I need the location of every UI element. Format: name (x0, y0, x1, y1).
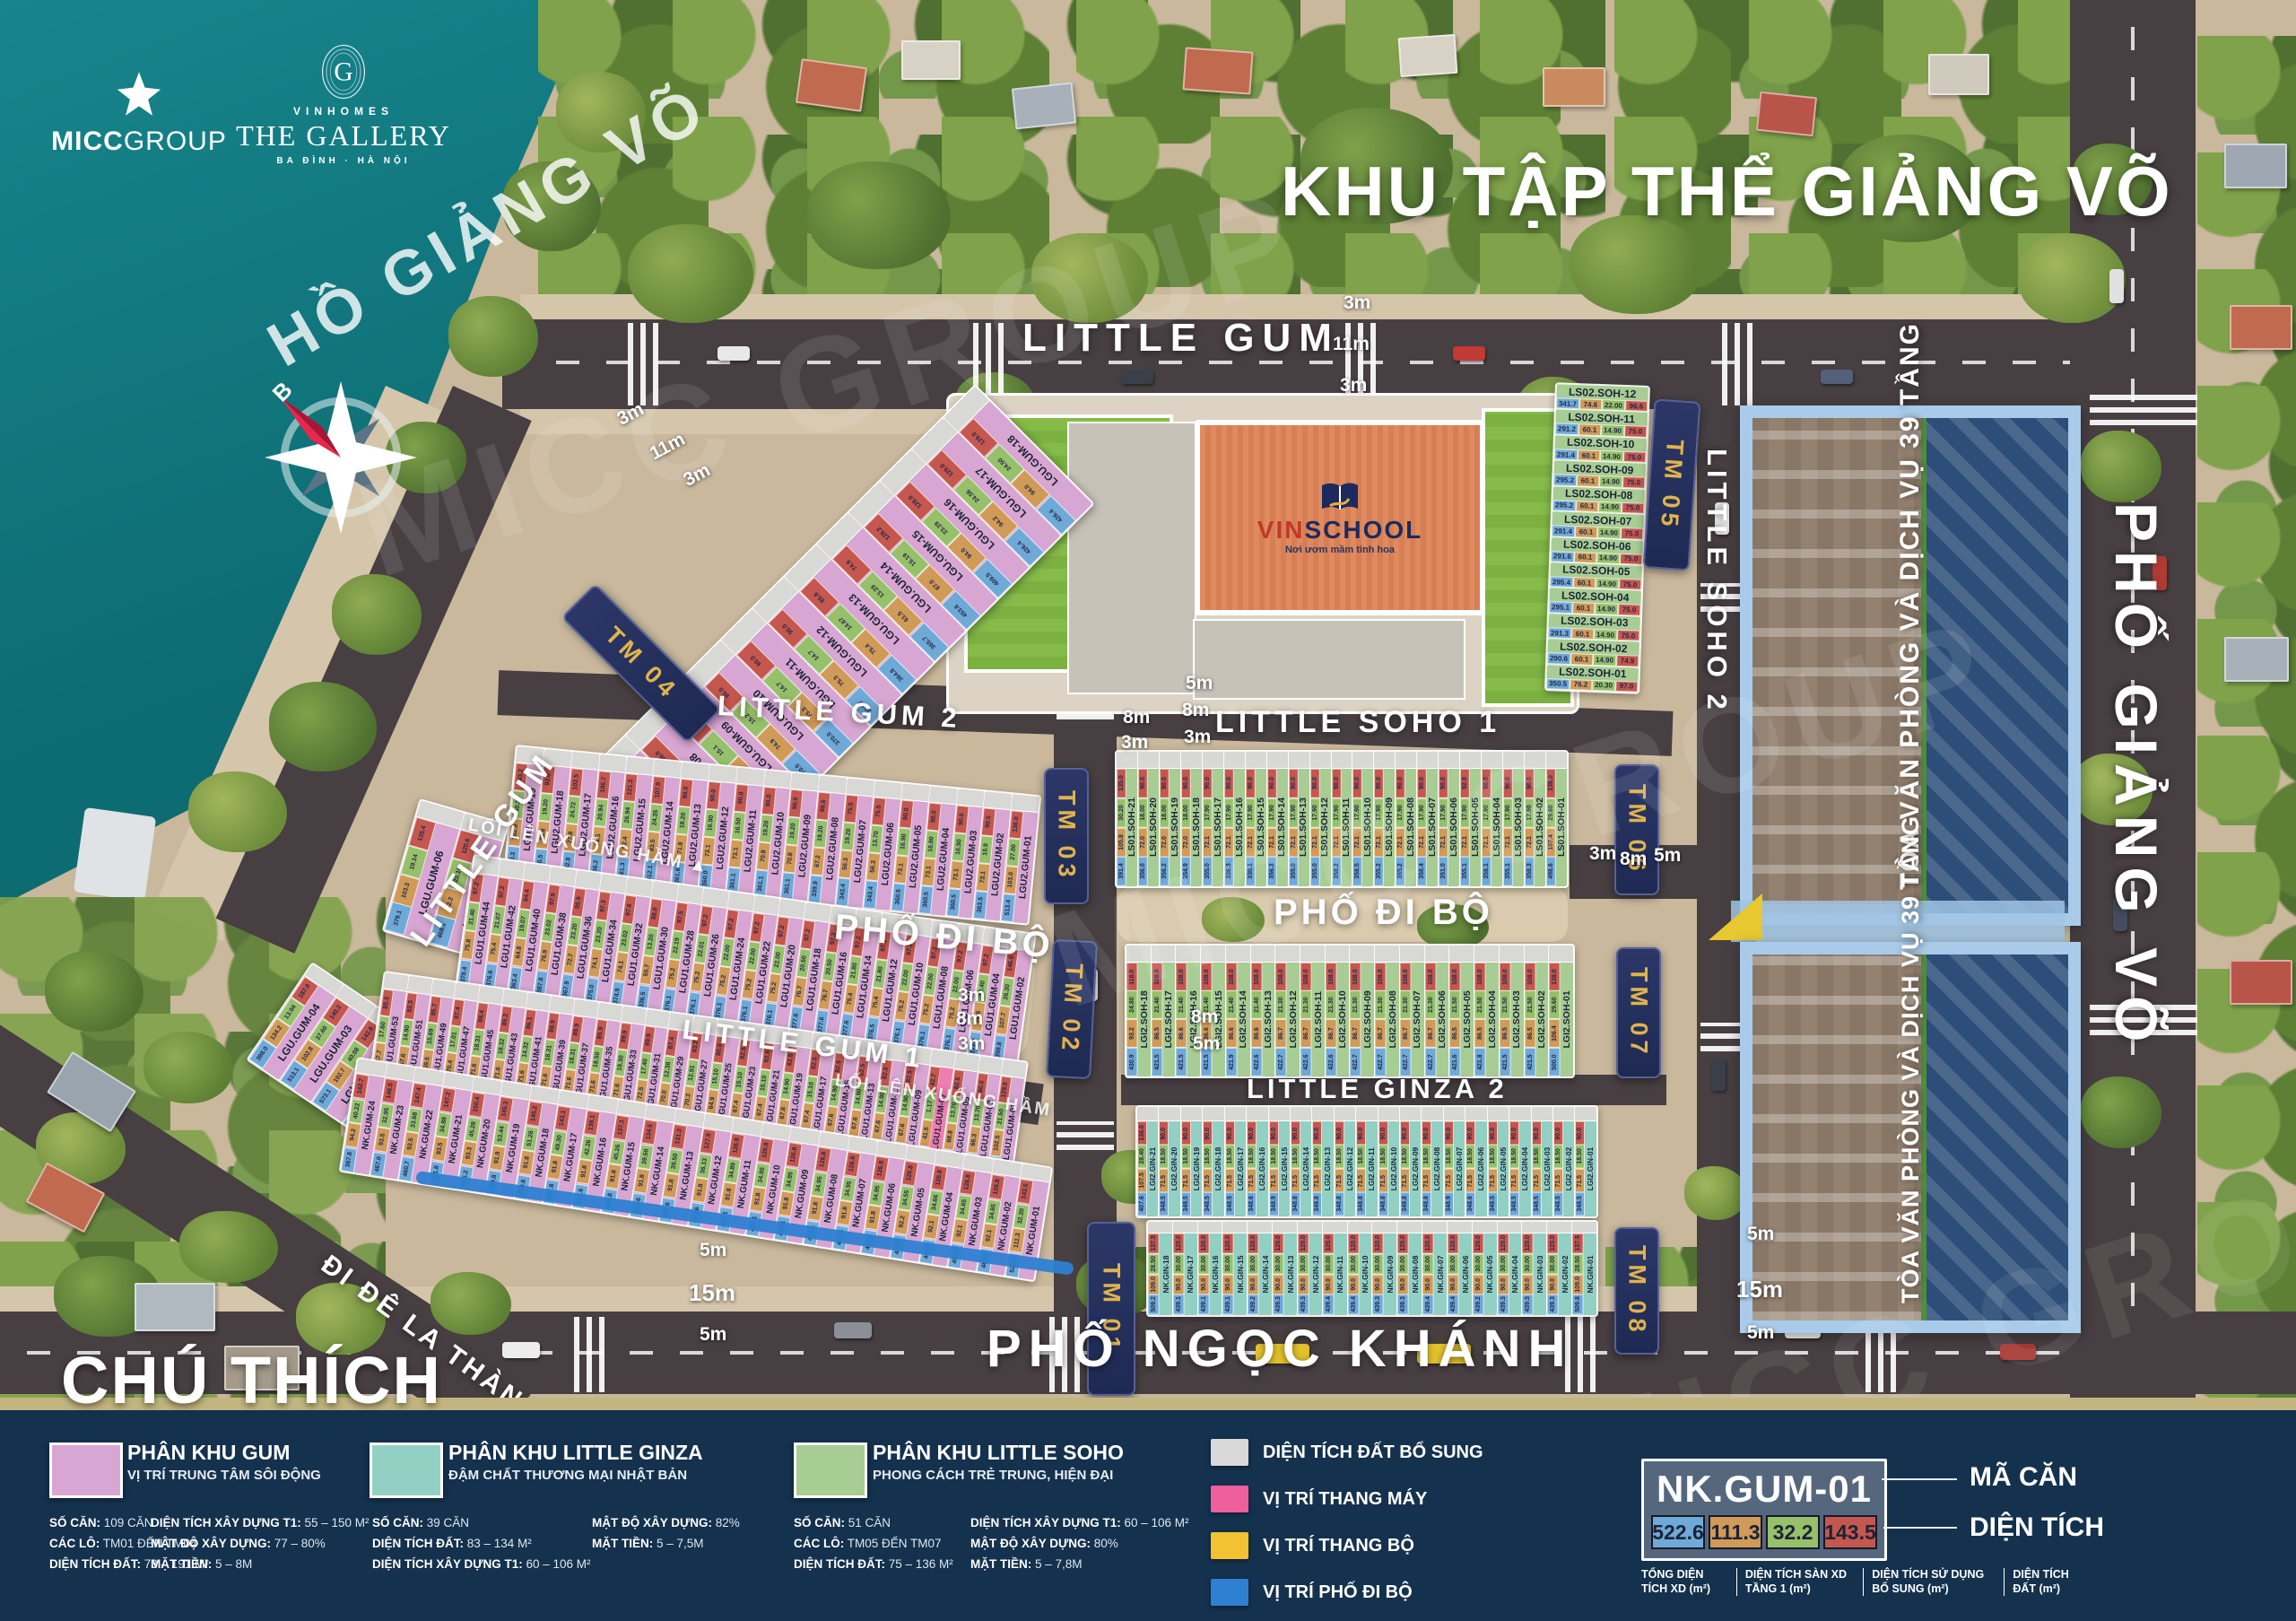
lot-NK.GIN-06: 120.030.0090.0439.4NK.GIN-06 (1448, 1222, 1472, 1315)
lot-NK.GIN-13: 120.030.0090.0439.3NK.GIN-13 (1273, 1222, 1297, 1315)
lot-NK.GIN-15: 120.030.0090.0439.1NK.GIN-15 (1222, 1222, 1247, 1315)
area-value-chip: 111.3 (1709, 1515, 1762, 1549)
lot-LGI2.GIN-19: 90.018.5071.5348.5LGI2.GIN-19 (1181, 1107, 1202, 1216)
legend-stats: DIỆN TÍCH XÂY DỰNG T1: 55 – 150 M²MẬT ĐỘ… (151, 1516, 370, 1578)
legend-stat: DIỆN TÍCH XÂY DỰNG T1: 60 – 106 M² (970, 1516, 1189, 1529)
micc-star-icon (113, 110, 165, 126)
area-value-chip: 143.5 (1823, 1515, 1877, 1549)
area-value-chip: 522.6 (1651, 1515, 1705, 1549)
lot-NK.GIN-17: 120.030.0090.0439.1NK.GIN-17 (1173, 1222, 1197, 1315)
lot-LGI2.GIN-17: 90.018.5071.5348.5LGI2.GIN-17 (1225, 1107, 1246, 1216)
lot-LS02.SOH-06: 291.660.114.9075.0LS02.SOH-06 (1551, 537, 1643, 565)
lot-LGI2.SOH-02: 108.021.5086.5421.5LGI2.SOH-02 (1525, 946, 1549, 1076)
lot-LS02.SOH-07: 291.460.114.9075.0LS02.SOH-07 (1552, 511, 1644, 539)
legend-marker-swatch (1211, 1439, 1248, 1466)
legend-swatch-ginza (370, 1442, 443, 1498)
legend-swatch-soho (794, 1442, 867, 1498)
micc-logo: MICCGROUP (40, 70, 238, 157)
dimension-label: 3m (1340, 375, 1367, 397)
lot-LGI2.SOH-03: 108.021.5086.5421.5LGI2.SOH-03 (1500, 946, 1524, 1076)
area-title: KHU TẬP THỂ GIẢNG VÕ (1281, 151, 2173, 232)
legend-stat: SỐ CĂN: 51 CĂN (794, 1516, 953, 1529)
lot-LGI2.GIN-08: 90.018.5071.5348.8LGI2.GIN-08 (1422, 1107, 1442, 1216)
lot-LS02.SOH-10: 291.460.114.9075.0LS02.SOH-10 (1554, 435, 1647, 463)
legend-zone-title: PHÂN KHU GUM (127, 1441, 290, 1465)
legend-stat: MẶT TIỀN: 5 – 8M (151, 1557, 370, 1571)
lot-LGI2.GIN-04: 90.018.5071.5348.5LGI2.GIN-04 (1509, 1107, 1530, 1216)
lot-LGI2.GIN-16: 90.018.5071.5348.6LGI2.GIN-16 (1247, 1107, 1267, 1216)
dimension-label: 3m (1121, 732, 1148, 754)
legend-zone-title: PHÂN KHU LITTLE GINZA (448, 1441, 703, 1465)
legend-stat: MẬT ĐỘ XÂY DỰNG: 80% (970, 1537, 1189, 1550)
legend-zone-subtitle: ĐẬM CHẤT THƯƠNG MẠI NHẬT BẢN (448, 1468, 687, 1483)
vinschool-tagline: Nơi ươm mầm tinh hoa (1285, 545, 1395, 555)
legend-stats: MẬT ĐỘ XÂY DỰNG: 82%MẶT TIỀN: 5 – 7,5M (592, 1516, 740, 1557)
lot-LS02.SOH-12: 341.774.622.0096.6LS02.SOH-12 (1556, 384, 1648, 412)
lot-LGI2.SOH-09: 108.021.3086.7422.7LGI2.SOH-09 (1350, 946, 1374, 1076)
lot-LGI2.SOH-08: 108.021.3086.7422.7LGI2.SOH-08 (1375, 946, 1399, 1076)
vinschool-name-red: VIN (1257, 516, 1305, 544)
lot-LS02.SOH-04: 295.160.114.9075.0LS02.SOH-04 (1549, 588, 1641, 616)
vinschool-name-blue: SCHOOL (1304, 516, 1422, 544)
lot-LS02.SOH-09: 295.260.114.9075.0LS02.SOH-09 (1553, 461, 1646, 489)
master-plan-poster: VINSCHOOL Nơi ươm mầm tinh hoa TÒA VĂN P… (0, 0, 2296, 1621)
lot-NK.GIN-05: 120.030.0090.0439.2NK.GIN-05 (1473, 1222, 1497, 1315)
lot-LS02.SOH-03: 291.360.114.9075.0LS02.SOH-03 (1548, 614, 1640, 641)
footnote: DIỆN TÍCH ĐẤT (m²) (2004, 1568, 2090, 1596)
lot-LGI2.GIN-21: 136.028.40107.5407.6LGI2.GIN-21 (1137, 1107, 1158, 1216)
lot-NK.GIN-02: 120.030.0090.0439.3NK.GIN-02 (1547, 1222, 1571, 1315)
lot-LGI2.GIN-20: 90.018.5071.5348.5LGI2.GIN-20 (1159, 1107, 1179, 1216)
legend-marker: VỊ TRÍ THANG BỘ (1211, 1532, 1483, 1559)
dimension-label: 3m (958, 1033, 985, 1055)
dimension-label: 5m (700, 1324, 726, 1346)
vinhomes-word: VINHOMES (231, 105, 456, 118)
dimension-label: 3m (1184, 727, 1211, 748)
footnote: DIỆN TÍCH SỬ DỤNG BỔ SUNG (m²) (1863, 1568, 2004, 1596)
callout-dien-tich: DIỆN TÍCH (1970, 1512, 2104, 1543)
footnote: DIỆN TÍCH SÀN XD TẦNG 1 (m²) (1736, 1568, 1863, 1596)
dimension-label: 5m (700, 1240, 726, 1261)
lot-NK.GIN-14: 120.030.0090.0439.2NK.GIN-14 (1248, 1222, 1272, 1315)
dimension-label: 5m (1186, 673, 1213, 694)
lot-LS02.SOH-08: 295.260.114.9075.0LS02.SOH-08 (1552, 486, 1645, 514)
lot-NK.GIN-10: 120.030.0090.0439.4NK.GIN-10 (1348, 1222, 1372, 1315)
school-building (1067, 422, 1196, 694)
legend-stat: MẬT ĐỘ XÂY DỰNG: 77 – 80% (151, 1537, 370, 1550)
dimension-label: 3m (958, 985, 985, 1007)
callout-ma-can: MÃ CĂN (1970, 1462, 2077, 1493)
street-label-little-soho-1: LITTLE SOHO 1 (1215, 705, 1500, 740)
legend-marker: VỊ TRÍ PHỐ ĐI BỘ (1211, 1579, 1483, 1606)
dimension-label: 15m (1736, 1276, 1783, 1303)
lot-LS02.SOH-05: 295.460.114.9075.0LS02.SOH-05 (1550, 562, 1642, 590)
legend-stats: SỐ CĂN: 39 CĂNDIỆN TÍCH ĐẤT: 83 – 134 M²… (372, 1516, 591, 1578)
tower-label: TÒA VĂN PHÒNG VÀ DỊCH VỤ 39 TẦNG (1892, 972, 1928, 1303)
lot-NK.GIN-18: 137.528.50109.0509.2NK.GIN-18 (1148, 1222, 1172, 1315)
lot-NK.GIN-03: 120.030.0090.0439.3NK.GIN-03 (1522, 1222, 1546, 1315)
legend-zone-title: PHÂN KHU LITTLE SOHO (873, 1441, 1124, 1465)
legend-stats: DIỆN TÍCH XÂY DỰNG T1: 60 – 106 M²MẬT ĐỘ… (970, 1516, 1189, 1578)
the-gallery-logo: G VINHOMES THE GALLERY BA ĐÌNH · HÀ NỘI (231, 43, 456, 166)
dimension-label: 3m (1344, 292, 1370, 314)
lot-LGI2.GIN-03: 90.018.5071.5348.5LGI2.GIN-03 (1532, 1107, 1552, 1216)
legend-marker-swatch (1211, 1486, 1248, 1512)
vinschool-roof: VINSCHOOL Nơi ươm mầm tinh hoa (1195, 420, 1485, 615)
lot-NK.GIN-04: 120.030.0090.0439.3NK.GIN-04 (1498, 1222, 1522, 1315)
lot-LS02.SOH-01: 350.576.220.3097.0LS02.SOH-01 (1546, 665, 1639, 693)
lot-LGI2.GIN-05: 90.018.5071.5348.5LGI2.GIN-05 (1488, 1107, 1509, 1216)
legend-marker-swatch (1211, 1532, 1248, 1559)
area-value-chip: 32.2 (1766, 1515, 1820, 1549)
lot-LGI2.GIN-18: 90.018.5071.5348.5LGI2.GIN-18 (1203, 1107, 1223, 1216)
lot-LGI2.GIN-13: 90.018.5071.5348.8LGI2.GIN-13 (1312, 1107, 1333, 1216)
legend-swatch-gum (49, 1442, 123, 1498)
legend-stat: MẬT ĐỘ XÂY DỰNG: 82% (592, 1516, 740, 1529)
dimension-label: 8m (1182, 700, 1209, 721)
block-nk-gin: 137.528.50109.0509.2NK.GIN-18120.030.009… (1146, 1220, 1598, 1317)
legend-zone-subtitle: VỊ TRÍ TRUNG TÂM SÔI ĐỘNG (127, 1468, 321, 1483)
street-label-ngoc-khanh: PHỐ NGỌC KHÁNH (987, 1319, 1572, 1379)
lot-LGI2.GIN-01: 90.018.5071.5348.5LGI2.GIN-01 (1575, 1107, 1596, 1216)
lot-LGI2.GIN-10: 90.018.5071.5348.8LGI2.GIN-10 (1378, 1107, 1399, 1216)
legend-heading: CHÚ THÍCH (61, 1342, 442, 1418)
lot-LGI2.GIN-07: 90.018.5071.5348.9LGI2.GIN-07 (1444, 1107, 1465, 1216)
lot-LGI2.SOH-07: 108.021.3086.7422.7LGI2.SOH-07 (1400, 946, 1424, 1076)
legend-marker-swatch (1211, 1579, 1248, 1606)
legend-zone-subtitle: PHONG CÁCH TRẺ TRUNG, HIỆN ĐẠI (873, 1468, 1113, 1483)
lot-LGI2.GIN-15: 90.018.5071.5348.9LGI2.GIN-15 (1269, 1107, 1290, 1216)
vinschool-logo-icon (1318, 480, 1361, 516)
legend-stats: SỐ CĂN: 51 CĂNCÁC LÔ: TM05 ĐẾN TM07DIỆN … (794, 1516, 953, 1578)
lot-NK.GIN-12: 120.030.0090.0439.3NK.GIN-12 (1298, 1222, 1322, 1315)
tm-marker-08: TM 08 (1614, 1227, 1659, 1355)
dimension-label: 8m (1123, 707, 1150, 728)
dimension-label: 8m (956, 1008, 983, 1030)
street-label-giang-vo: PHỐ GIẢNG VÕ (2102, 502, 2170, 1050)
lot-LGI2.SOH-01: 138.029.60106.4500.0LGI2.SOH-01 (1549, 946, 1573, 1076)
lot-LGI2.GIN-06: 90.018.5071.5348.6LGI2.GIN-06 (1465, 1107, 1486, 1216)
school-building (1193, 619, 1465, 700)
legend-stat: DIỆN TÍCH ĐẤT: 83 – 134 M² (372, 1537, 591, 1550)
legend-stat: DIỆN TÍCH XÂY DỰNG T1: 55 – 150 M² (151, 1516, 370, 1529)
legend-stat: DIỆN TÍCH XÂY DỰNG T1: 60 – 106 M² (372, 1557, 591, 1571)
lot-LGI2.GIN-09: 90.018.5071.5348.8LGI2.GIN-09 (1400, 1107, 1421, 1216)
footnote: TỔNG DIỆN TÍCH XD (m²) (1641, 1568, 1736, 1596)
dimension-label: 8m (1191, 1007, 1218, 1028)
lot-NK.GIN-07: 120.030.0090.0439.4NK.GIN-07 (1422, 1222, 1447, 1315)
legend-marker: DIỆN TÍCH ĐẤT BỔ SUNG (1211, 1439, 1483, 1466)
tm-marker-07: TM 07 (1616, 947, 1661, 1078)
street-label-little-ginza-2: LITTLE GINZA 2 (1247, 1073, 1508, 1105)
lakeside-building (74, 807, 156, 902)
lot-NK.GIN-16: 120.030.0090.0439.1NK.GIN-16 (1198, 1222, 1222, 1315)
block-lgi2-gin: 136.028.40107.5407.6LGI2.GIN-2190.018.50… (1135, 1105, 1598, 1218)
gallery-word: THE GALLERY (231, 119, 456, 153)
callout-line (1883, 1527, 1957, 1529)
gallery-monogram-icon: G (320, 89, 367, 104)
lot-info-card: NK.GUM-01 522.6111.332.2143.5 (1641, 1459, 1887, 1561)
block-ls02-soh: 341.774.622.0096.6LS02.SOH-12291.260.114… (1544, 382, 1650, 693)
legend-stat: CÁC LÔ: TM05 ĐẾN TM07 (794, 1537, 953, 1550)
lot-NK.GIN-09: 120.030.0090.0439.3NK.GIN-09 (1372, 1222, 1396, 1315)
lot-NK.GIN-08: 120.030.0090.0439.3NK.GIN-08 (1397, 1222, 1422, 1315)
lot-LGI2.GIN-12: 90.018.5071.5348.8LGI2.GIN-12 (1335, 1107, 1355, 1216)
info-card-values: 522.6111.332.2143.5 (1649, 1515, 1879, 1549)
lot-LGI2.GIN-02: 90.018.5071.5348.5LGI2.GIN-02 (1553, 1107, 1574, 1216)
callout-line (1882, 1478, 1957, 1480)
gallery-location: BA ĐÌNH · HÀ NỘI (231, 156, 456, 166)
lot-NK.GIN-11: 120.030.0090.0439.4NK.GIN-11 (1323, 1222, 1347, 1315)
info-card-footnotes: TỔNG DIỆN TÍCH XD (m²)DIỆN TÍCH SÀN XD T… (1641, 1568, 2090, 1596)
legend-stat: MẶT TIỀN: 5 – 7,8M (970, 1557, 1189, 1571)
dimension-label: 11m (1333, 334, 1370, 355)
lot-LGI2.GIN-11: 90.018.5071.5348.8LGI2.GIN-11 (1356, 1107, 1377, 1216)
lot-LGI2.SOH-06: 108.021.3086.7422.7LGI2.SOH-06 (1425, 946, 1449, 1076)
legend-marker: VỊ TRÍ THANG MÁY (1211, 1486, 1483, 1512)
legend-marker-list: DIỆN TÍCH ĐẤT BỔ SUNGVỊ TRÍ THANG MÁYVỊ … (1211, 1439, 1483, 1621)
lot-LGI2.SOH-05: 108.021.5086.5421.6LGI2.SOH-05 (1449, 946, 1474, 1076)
lot-NK.GIN-01: 137.528.50109.0509.8NK.GIN-01 (1572, 1222, 1596, 1315)
dimension-label: 15m (689, 1279, 735, 1307)
dimension-label: 5m (1193, 1033, 1220, 1055)
legend-stat: MẶT TIỀN: 5 – 7,5M (592, 1537, 740, 1550)
compass-north-letter: B (268, 381, 298, 406)
lot-LS02.SOH-11: 291.260.114.9075.0LS02.SOH-11 (1555, 410, 1648, 438)
lot-LGI2.GIN-14: 90.018.5071.5348.8LGI2.GIN-14 (1291, 1107, 1311, 1216)
legend-stat: SỐ CĂN: 39 CĂN (372, 1516, 591, 1529)
info-card-code: NK.GUM-01 (1657, 1470, 1872, 1508)
dimension-label: 5m (1747, 1224, 1774, 1245)
lot-LGI2.SOH-10: 108.021.3086.7422.6LGI2.SOH-10 (1326, 946, 1350, 1076)
svg-text:G: G (334, 58, 352, 87)
lot-LGI2.SOH-04: 108.021.5086.5421.8LGI2.SOH-04 (1474, 946, 1499, 1076)
legend-stat: DIỆN TÍCH ĐẤT: 75 – 136 M² (794, 1557, 953, 1571)
lot-LS02.SOH-02: 290.660.114.9074.9LS02.SOH-02 (1547, 639, 1639, 667)
